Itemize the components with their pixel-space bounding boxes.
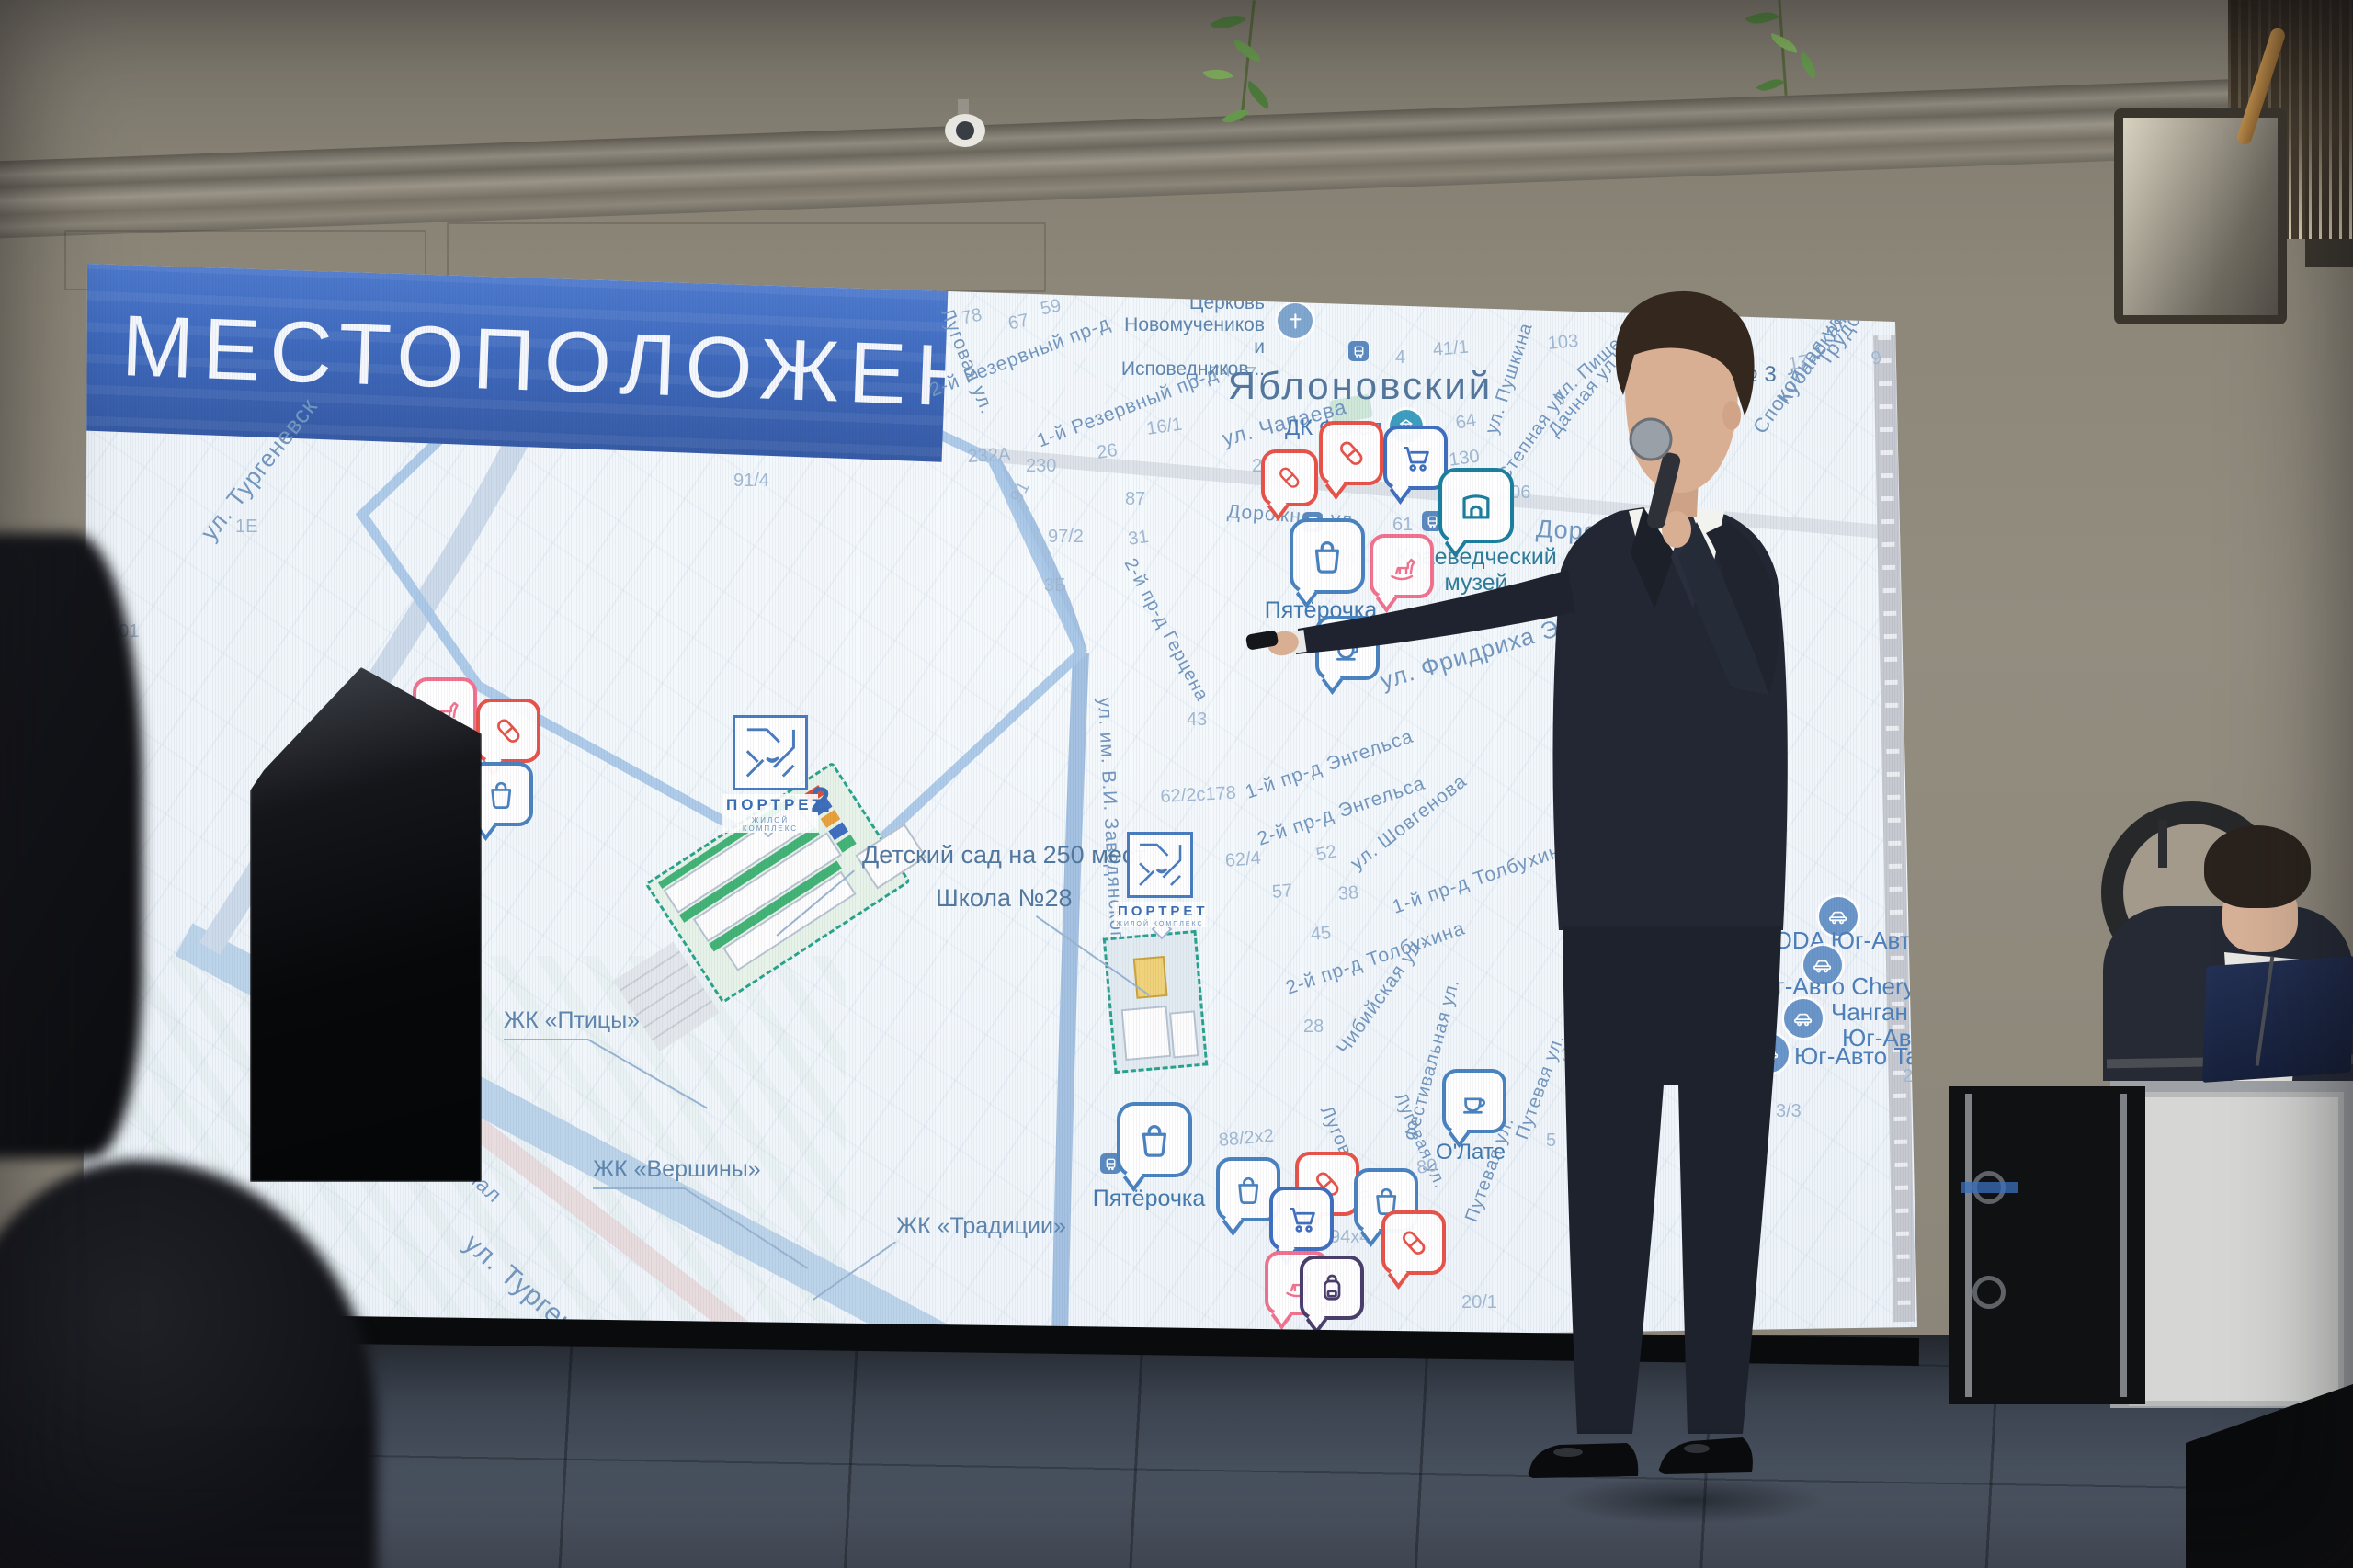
extended-arm (1296, 570, 1575, 654)
trousers (1563, 926, 1781, 1434)
conference-room-photo: МЕСТОПОЛОЖЕНИЕ ул. Тургеневск ул. Турген… (0, 0, 2353, 1568)
shoe (1659, 1437, 1753, 1474)
ear (1722, 401, 1741, 430)
shoe (1529, 1443, 1639, 1478)
shoe-highlight (1684, 1444, 1710, 1453)
shoe-highlight (1553, 1448, 1583, 1457)
audience-shoulder-blur (0, 533, 142, 1158)
microphone-head (1631, 419, 1671, 460)
